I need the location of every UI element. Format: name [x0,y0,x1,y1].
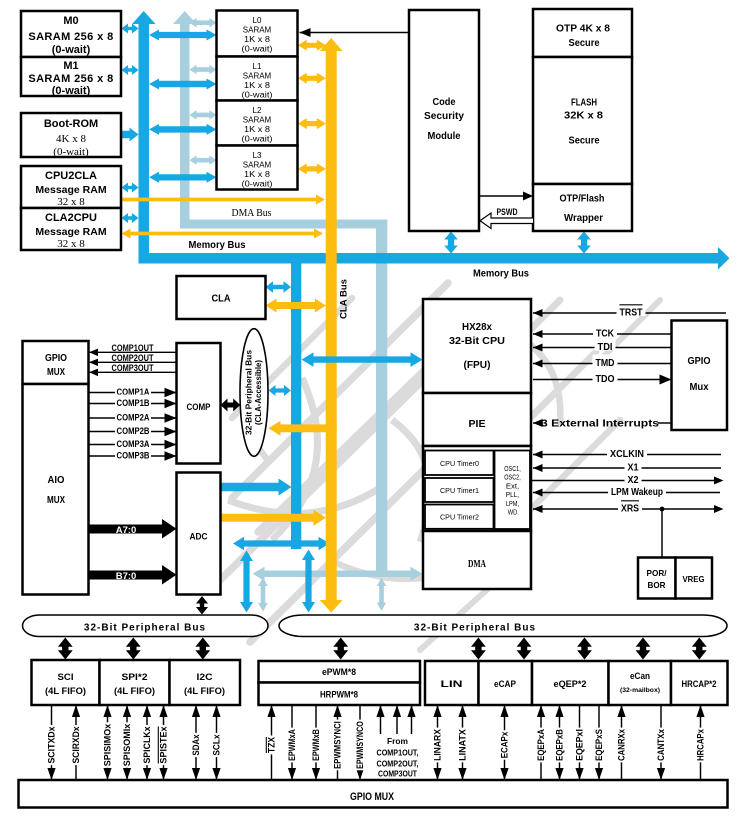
svg-text:Message RAM: Message RAM [35,184,106,196]
svg-text:M1: M1 [63,60,78,72]
svg-text:SCLx: SCLx [212,734,222,755]
svg-text:OTP/Flash: OTP/Flash [560,193,605,205]
svg-text:HRCAP*2: HRCAP*2 [682,679,717,690]
svg-text:LPM,: LPM, [506,501,519,508]
svg-text:LINATX: LINATX [458,729,468,761]
svg-text:OTP 4K x 8: OTP 4K x 8 [556,23,610,35]
svg-text:(0-wait): (0-wait) [52,85,91,97]
svg-text:GPIO MUX: GPIO MUX [350,791,395,803]
svg-text:(0-wait): (0-wait) [242,135,273,144]
svg-text:SARAM: SARAM [243,116,272,125]
svg-text:SPISOMIx: SPISOMIx [122,724,132,766]
svg-text:VREG: VREG [683,574,705,584]
svg-text:TRST: TRST [620,308,643,319]
svg-text:ePWM*8: ePWM*8 [322,667,356,678]
svg-text:ECAPx: ECAPx [500,732,510,759]
svg-text:eCAP: eCAP [494,679,517,690]
svg-text:TMD: TMD [596,358,615,369]
svg-text:Memory Bus: Memory Bus [189,239,246,251]
svg-text:COMP2OUT: COMP2OUT [112,353,154,363]
svg-text:Ext,: Ext, [506,483,519,490]
svg-text:I2C: I2C [197,672,213,683]
svg-text:TDO: TDO [596,374,615,385]
svg-text:(4L FIFO): (4L FIFO) [45,686,86,697]
svg-text:L2: L2 [253,106,262,115]
svg-text:PLL,: PLL, [506,492,519,499]
svg-text:1K x 8: 1K x 8 [244,125,271,134]
svg-text:CANRXx: CANRXx [617,729,627,761]
svg-text:CANTXx: CANTXx [656,729,666,761]
svg-text:(0-wait): (0-wait) [52,44,91,56]
svg-text:TDI: TDI [598,342,613,353]
svg-text:SARAM 256 x 8: SARAM 256 x 8 [28,73,113,85]
svg-text:3 External Interrupts: 3 External Interrupts [541,419,660,430]
svg-text:EQEPxA: EQEPxA [536,729,546,761]
svg-text:PSWD: PSWD [497,207,518,218]
svg-text:32-Bit Peripheral Bus: 32-Bit Peripheral Bus [245,349,254,435]
svg-text:COMP2OUT,: COMP2OUT, [377,759,419,769]
svg-text:(FPU): (FPU) [464,359,491,371]
svg-text:Security: Security [424,110,464,122]
svg-text:EPWMxA: EPWMxA [287,729,297,761]
svg-text:(32-mailbox): (32-mailbox) [620,687,660,694]
svg-text:Wrapper: Wrapper [564,212,603,224]
svg-text:OSC2,: OSC2, [504,475,521,482]
svg-text:AIO: AIO [48,474,65,486]
svg-text:32-Bit CPU: 32-Bit CPU [449,335,505,347]
svg-text:XCLKIN: XCLKIN [610,449,644,460]
svg-text:SARAM: SARAM [243,72,272,81]
svg-text:Module: Module [428,130,461,142]
svg-text:EQEPxB: EQEPxB [555,729,565,761]
svg-text:Memory Bus: Memory Bus [473,268,529,280]
svg-text:SDAx: SDAx [191,734,201,755]
svg-text:FLASH: FLASH [571,97,597,109]
svg-text:SCITXDx: SCITXDx [47,726,57,763]
svg-text:Secure: Secure [569,135,600,147]
svg-text:(0-wait): (0-wait) [242,45,273,54]
svg-text:1K x 8: 1K x 8 [244,81,271,90]
svg-text:GPIO: GPIO [688,355,711,367]
svg-text:HX28x: HX28x [462,321,492,333]
svg-text:(CLA-Accessible): (CLA-Accessible) [254,360,263,425]
svg-text:BOR: BOR [648,580,666,590]
svg-text:SPISIMOx: SPISIMOx [103,724,113,766]
svg-text:SCIRXDx: SCIRXDx [71,726,81,763]
svg-text:Code: Code [433,96,456,108]
svg-text:TZX: TZX [267,737,277,753]
svg-text:EPWMSYNCO: EPWMSYNCO [355,721,365,769]
svg-text:ADC: ADC [190,532,208,543]
svg-text:COMP2B: COMP2B [117,426,150,436]
svg-text:B7:0: B7:0 [116,571,137,582]
svg-text:CLA Bus: CLA Bus [339,279,350,319]
svg-text:EPWMxB: EPWMxB [311,729,321,761]
svg-text:COMP: COMP [187,402,212,413]
svg-text:eQEP*2: eQEP*2 [554,679,587,690]
svg-text:SARAM 256 x 8: SARAM 256 x 8 [28,31,113,43]
svg-text:L0: L0 [253,16,262,25]
svg-text:DMA: DMA [468,559,486,570]
svg-text:L3: L3 [253,151,262,160]
svg-text:COMP1B: COMP1B [117,398,150,408]
svg-text:LPM Wakeup: LPM Wakeup [611,487,663,498]
svg-text:(0-wait): (0-wait) [242,91,273,100]
svg-text:EPWMSYNCI: EPWMSYNCI [333,721,343,769]
svg-text:MUX: MUX [47,366,65,378]
svg-text:MUX: MUX [47,494,65,506]
svg-text:Secure: Secure [569,37,600,49]
svg-text:OSC1,: OSC1, [504,466,521,473]
svg-text:CPU Timer0: CPU Timer0 [440,461,479,468]
svg-text:1K x 8: 1K x 8 [244,35,271,44]
svg-text:WD: WD [508,510,518,517]
svg-text:GPIO: GPIO [45,352,67,364]
svg-text:M0: M0 [63,15,78,27]
svg-text:SARAM: SARAM [243,26,272,35]
svg-text:DMA Bus: DMA Bus [232,208,272,219]
svg-text:Message RAM: Message RAM [35,226,106,238]
svg-text:CPU Timer1: CPU Timer1 [440,488,479,495]
svg-text:SCI: SCI [58,672,74,683]
svg-text:COMP3OUT: COMP3OUT [378,769,418,779]
svg-text:A7:0: A7:0 [116,525,137,536]
svg-text:COMP1OUT,: COMP1OUT, [377,748,419,758]
svg-text:XRS: XRS [621,504,639,515]
svg-text:TCK: TCK [596,329,615,340]
svg-text:SARAM: SARAM [243,161,272,170]
svg-text:Mux: Mux [690,381,709,393]
svg-text:eCan: eCan [630,671,650,682]
svg-text:COMP3OUT: COMP3OUT [112,363,154,373]
svg-text:CLA: CLA [212,293,231,305]
svg-text:CPU2CLA: CPU2CLA [45,170,97,182]
svg-text:CPU Timer2: CPU Timer2 [440,515,479,522]
svg-text:Boot-ROM: Boot-ROM [44,118,98,130]
svg-text:(0-wait): (0-wait) [53,146,89,158]
svg-text:32 x 8: 32 x 8 [57,238,85,250]
svg-text:COMP1OUT: COMP1OUT [112,343,154,353]
svg-text:32K x 8: 32K x 8 [564,110,603,122]
svg-text:(0-wait): (0-wait) [242,180,273,189]
svg-text:(4L FIFO): (4L FIFO) [184,686,225,697]
svg-text:COMP2A: COMP2A [117,413,150,423]
svg-text:L1: L1 [253,62,262,71]
svg-text:HRCAPx: HRCAPx [696,729,706,761]
svg-text:SPISTEx: SPISTEx [159,726,169,763]
svg-text:CLA2CPU: CLA2CPU [45,212,97,224]
svg-text:LINARX: LINARX [433,729,443,761]
svg-text:32-Bit Peripheral Bus: 32-Bit Peripheral Bus [414,623,536,634]
svg-text:From: From [387,736,408,746]
svg-text:COMP3B: COMP3B [117,451,150,461]
svg-text:SPICLKx: SPICLKx [142,726,152,763]
svg-text:32 x 8: 32 x 8 [57,196,85,208]
svg-text:1K x 8: 1K x 8 [244,170,271,179]
svg-text:LIN: LIN [441,679,463,690]
svg-text:EQEPxI: EQEPxI [575,729,585,761]
svg-text:32-Bit Peripheral Bus: 32-Bit Peripheral Bus [84,623,206,634]
svg-text:POR/: POR/ [647,568,668,578]
svg-text:SPI*2: SPI*2 [122,672,148,683]
svg-text:PIE: PIE [469,418,486,430]
svg-text:(4L FIFO): (4L FIFO) [114,686,155,697]
svg-text:4K x 8: 4K x 8 [56,133,86,145]
svg-text:HRPWM*8: HRPWM*8 [320,690,358,701]
svg-text:EQEPxS: EQEPxS [594,729,604,761]
